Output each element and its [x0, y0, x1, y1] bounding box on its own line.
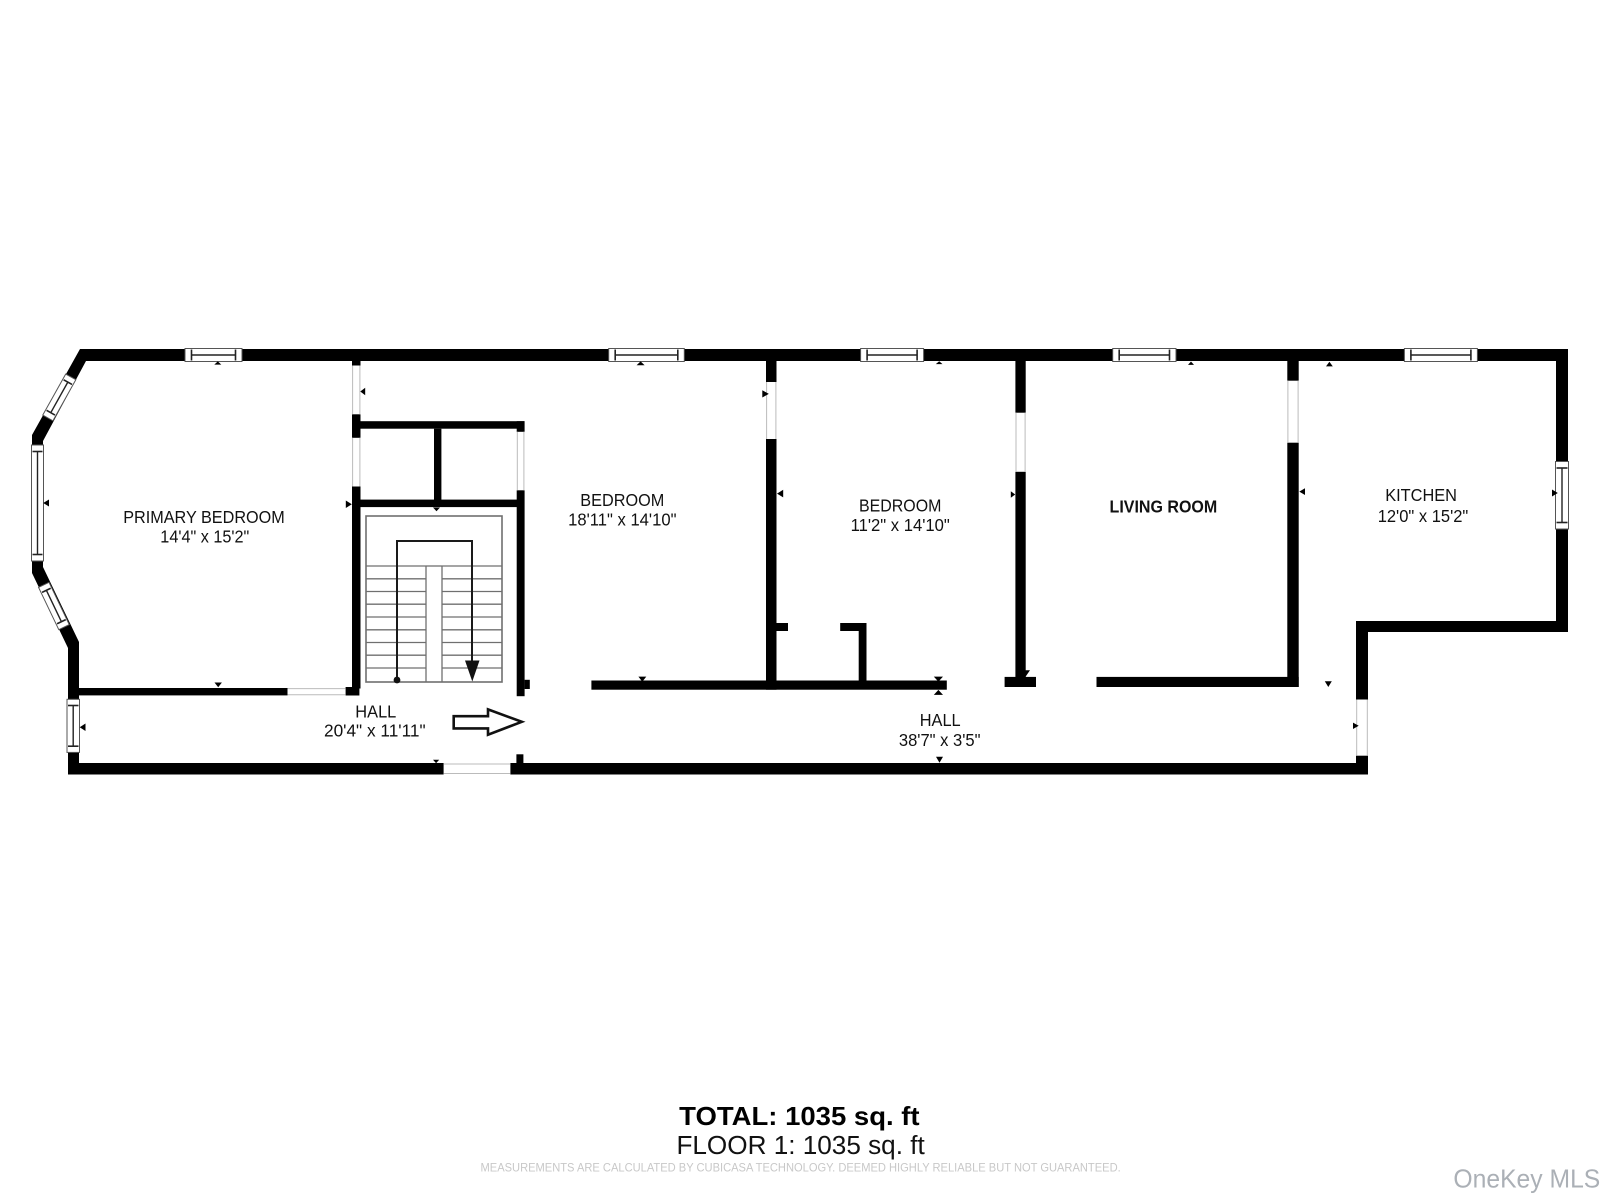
svg-text:MEASUREMENTS ARE CALCULATED BY: MEASUREMENTS ARE CALCULATED BY CUBICASA …	[481, 1162, 1121, 1174]
svg-text:KITCHEN: KITCHEN	[1385, 485, 1457, 505]
svg-text:18'11" x 14'10": 18'11" x 14'10"	[568, 509, 676, 529]
svg-text:LIVING ROOM: LIVING ROOM	[1110, 497, 1218, 517]
svg-text:HALL: HALL	[920, 710, 961, 730]
svg-text:12'0" x 15'2": 12'0" x 15'2"	[1378, 506, 1469, 526]
svg-text:HALL: HALL	[355, 702, 396, 722]
svg-text:TOTAL: 1035 sq. ft: TOTAL: 1035 sq. ft	[679, 1101, 920, 1131]
svg-text:BEDROOM: BEDROOM	[859, 496, 941, 516]
svg-text:20'4" x 11'11": 20'4" x 11'11"	[324, 721, 426, 741]
svg-text:BEDROOM: BEDROOM	[580, 490, 664, 510]
svg-text:PRIMARY BEDROOM: PRIMARY BEDROOM	[123, 507, 285, 527]
svg-text:14'4" x 15'2": 14'4" x 15'2"	[160, 527, 249, 547]
svg-text:FLOOR 1: 1035 sq. ft: FLOOR 1: 1035 sq. ft	[676, 1130, 925, 1160]
svg-text:38'7" x 3'5": 38'7" x 3'5"	[899, 730, 981, 750]
svg-text:OneKey MLS: OneKey MLS	[1453, 1164, 1600, 1194]
svg-text:11'2" x 14'10": 11'2" x 14'10"	[851, 515, 950, 535]
